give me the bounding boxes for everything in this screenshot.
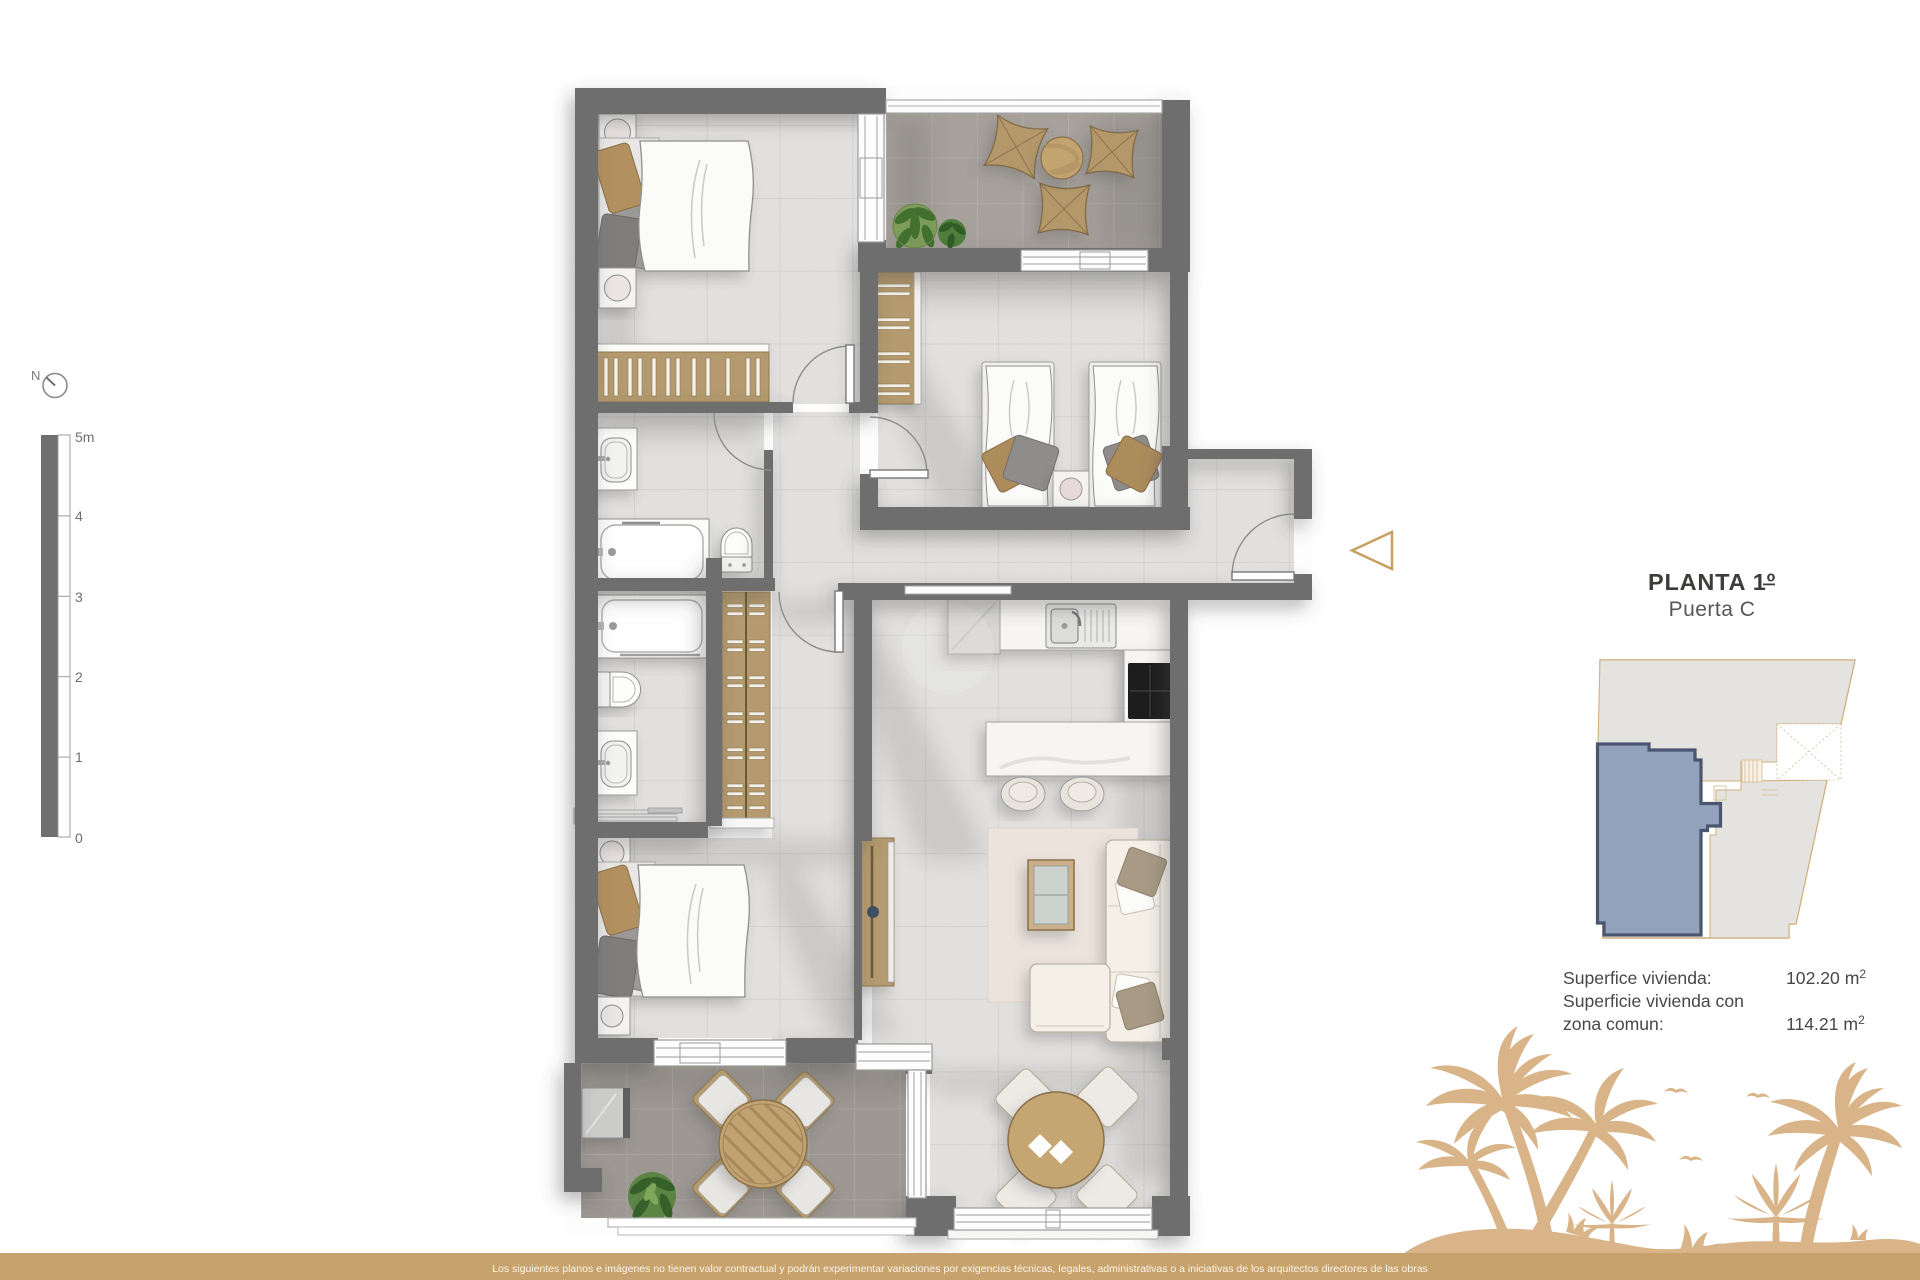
svg-text:0: 0 <box>75 830 83 846</box>
svg-text:Superficie vivienda con: Superficie vivienda con <box>1563 991 1744 1011</box>
svg-text:Los siguientes planos e imágen: Los siguientes planos e imágenes no tien… <box>492 1263 1428 1275</box>
svg-text:3: 3 <box>75 589 83 605</box>
svg-text:114.21 m2: 114.21 m2 <box>1786 1013 1865 1034</box>
svg-text:PLANTA 1º: PLANTA 1º <box>1648 569 1776 595</box>
svg-text:zona comun:: zona comun: <box>1563 1014 1664 1034</box>
svg-text:Puerta C: Puerta C <box>1669 598 1756 621</box>
svg-text:4: 4 <box>75 508 83 524</box>
svg-text:5m: 5m <box>75 429 94 445</box>
svg-text:2: 2 <box>75 669 83 685</box>
svg-text:Superfice vivienda:: Superfice vivienda: <box>1563 968 1712 988</box>
svg-text:N: N <box>31 368 40 383</box>
svg-text:102.20 m2: 102.20 m2 <box>1786 967 1866 988</box>
svg-text:1: 1 <box>75 749 83 765</box>
